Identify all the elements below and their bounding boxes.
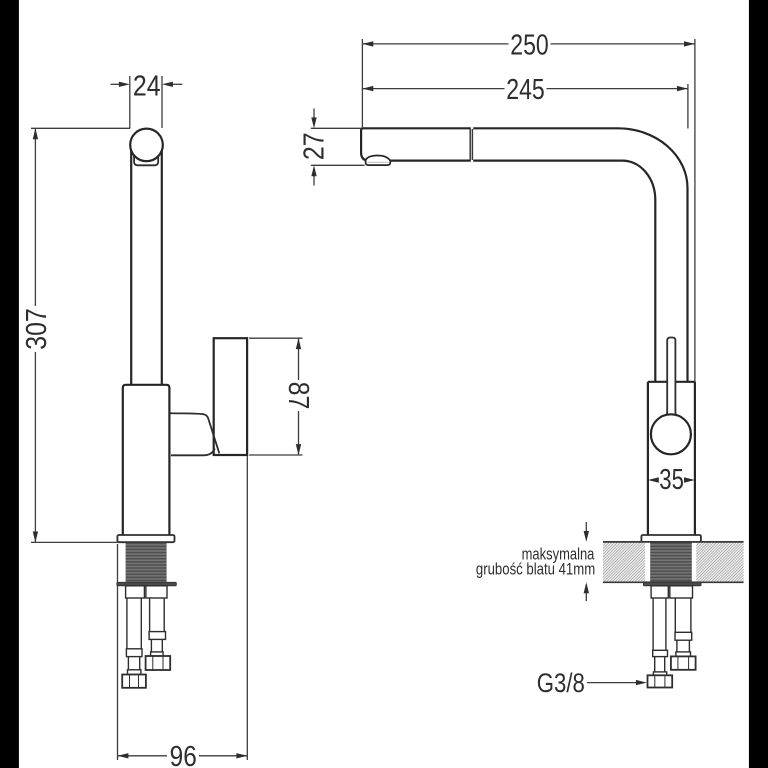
svg-text:96: 96 — [170, 741, 197, 768]
svg-text:27: 27 — [299, 132, 331, 160]
svg-text:307: 307 — [21, 308, 53, 350]
svg-text:250: 250 — [510, 29, 549, 61]
svg-text:grubość blatu 41mm: grubość blatu 41mm — [476, 560, 595, 579]
svg-text:35: 35 — [659, 464, 684, 496]
svg-text:G3/8: G3/8 — [537, 668, 585, 698]
svg-text:87: 87 — [282, 382, 314, 410]
svg-text:245: 245 — [506, 74, 545, 106]
svg-text:24: 24 — [133, 71, 161, 103]
